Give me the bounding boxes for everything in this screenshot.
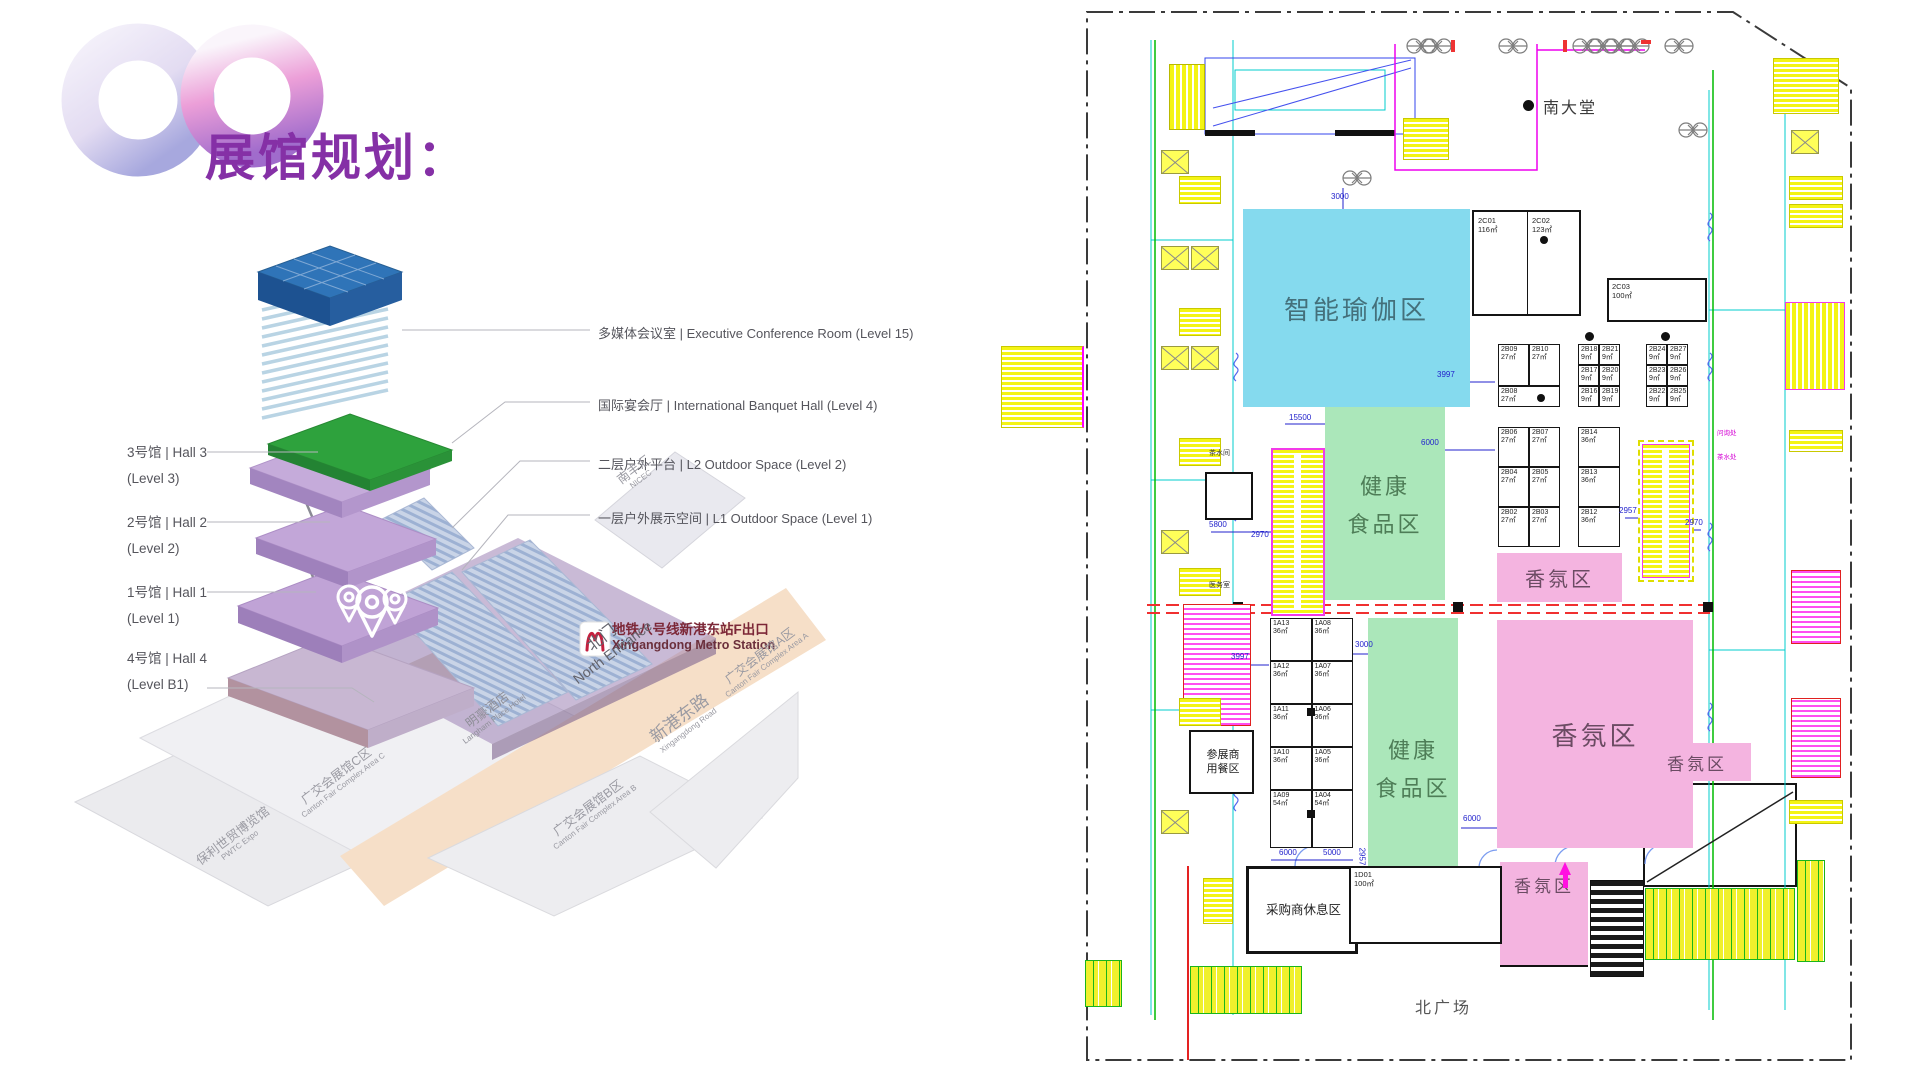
dim: 6000 (1421, 438, 1439, 447)
cad-lift (1191, 346, 1219, 370)
booth: 2B0327㎡ (1529, 507, 1560, 547)
label-hall4: 4号馆 | Hall 4(Level B1) (127, 646, 207, 698)
label-banquet: 国际宴会厅 | International Banquet Hall (Leve… (598, 395, 877, 414)
booth: 2B1027㎡ (1529, 344, 1560, 386)
booth: 2B279㎡ (1667, 344, 1688, 365)
booth: 2B239㎡ (1646, 365, 1667, 386)
booth: 1A0536㎡ (1312, 747, 1354, 790)
entrance-arrow-stem (1563, 874, 1568, 888)
dim: 2970 (1685, 518, 1703, 527)
escalator-left (1271, 448, 1325, 616)
cad-lift (1161, 246, 1189, 270)
dim: 5000 (1323, 848, 1341, 857)
cad-stair (1789, 176, 1843, 200)
booth: 2B0827㎡ (1498, 386, 1560, 407)
room-2c01-2c02: 2C01116㎡ 2C02123㎡ (1472, 210, 1581, 316)
zone-scent-bottom-right: 香氛区 (1643, 743, 1751, 781)
dim: 2957 (1619, 506, 1637, 515)
floor-plan: 智能瑜伽区 健康 食品区 香氛区 健康 食品区 香氛区 香氛区 香氛区 2C01… (1085, 10, 1855, 1062)
cad-lift (1161, 810, 1189, 834)
dim: 5800 (1209, 520, 1227, 529)
booth: 1A0454㎡ (1312, 790, 1354, 848)
cad-lift (1191, 246, 1219, 270)
zone-scent-large: 香氛区 (1497, 620, 1693, 848)
south-lobby-dot (1523, 100, 1534, 111)
cad-lift (1161, 530, 1189, 554)
booth: 2B229㎡ (1646, 386, 1667, 407)
north-plaza-label: 北广场 (1415, 994, 1472, 1018)
booth: 1A1336㎡ (1270, 618, 1312, 661)
exhibitor-dining-area: 参展商用餐区 (1189, 730, 1254, 794)
cad-stair (1179, 176, 1221, 204)
zone-scent-bottom-center: 香氛区 (1500, 862, 1588, 967)
booth-cluster-2b08-10: 2B0927㎡ 2B1027㎡ 2B0827㎡ (1498, 344, 1560, 407)
cad-comb (1190, 966, 1302, 1014)
room-2c03: 2C03100㎡ (1607, 278, 1707, 322)
column-dot (1585, 332, 1594, 341)
dim: 6000 (1279, 848, 1297, 857)
booth: 2B189㎡ (1578, 344, 1599, 365)
booth: 2B1236㎡ (1578, 507, 1620, 547)
column-dot (1307, 708, 1315, 716)
column-dot (1307, 810, 1315, 818)
zone-smart-yoga-label: 智能瑜伽区 (1284, 290, 1429, 327)
booth-cluster-2b22-27: 2B249㎡ 2B279㎡ 2B239㎡ 2B269㎡ 2B229㎡ 2B259… (1646, 344, 1688, 407)
room-1d01: 1D01100㎡ (1349, 866, 1502, 944)
cad-stair (1203, 878, 1233, 924)
booth: 1A0736㎡ (1312, 661, 1354, 704)
dim: 3997 (1437, 370, 1455, 379)
label-l1-outdoor: 一层户外展示空间 | L1 Outdoor Space (Level 1) (598, 508, 872, 527)
cad-stair (1179, 308, 1221, 336)
cad-comb (1085, 960, 1122, 1007)
booth: 1A0836㎡ (1312, 618, 1354, 661)
cad-annex (1001, 346, 1084, 428)
cad-stair (1179, 698, 1221, 726)
column-dot (1540, 236, 1548, 244)
cad-dark-stair (1590, 880, 1644, 977)
booth: 2B1336㎡ (1578, 467, 1620, 507)
booth: 2B1436㎡ (1578, 427, 1620, 467)
slide: { "title": "展馆规划：", "diagram": { "right_… (0, 0, 1920, 1080)
booth: 2B179㎡ (1578, 365, 1599, 386)
booth: 2B219㎡ (1599, 344, 1620, 365)
cad-comb (1797, 860, 1825, 962)
booth-column-2b12-14: 2B1436㎡ 2B1336㎡ 2B1236㎡ (1578, 427, 1620, 547)
dim: 2957 (1357, 848, 1366, 866)
info-desk-label: 问询处 (1717, 430, 1737, 438)
booth: 2B249㎡ (1646, 344, 1667, 365)
cad-stair (1785, 302, 1845, 390)
booth: 1A1036㎡ (1270, 747, 1312, 790)
tea-station-label: 茶水处 (1717, 454, 1737, 462)
dim: 3000 (1355, 640, 1373, 649)
booth: 2B269㎡ (1667, 365, 1688, 386)
label-hall3: 3号馆 | Hall 3(Level 3) (127, 440, 207, 492)
cad-tables (1791, 570, 1841, 644)
shaft-room (1205, 472, 1253, 520)
dim: 3997 (1231, 652, 1249, 661)
cad-stair (1773, 58, 1839, 114)
south-lobby-label: 南大堂 (1543, 94, 1597, 118)
cad-lift (1161, 150, 1189, 174)
escalator-right (1638, 440, 1694, 582)
booth: 1A1236㎡ (1270, 661, 1312, 704)
booth: 2B259㎡ (1667, 386, 1688, 407)
label-conference: 多媒体会议室 | Executive Conference Room (Leve… (598, 323, 914, 342)
dim: 15500 (1289, 413, 1311, 422)
booth: 2B0527㎡ (1529, 467, 1560, 507)
cad-tables (1791, 698, 1841, 778)
cad-hatch (1169, 64, 1205, 130)
cad-stair (1789, 430, 1843, 452)
booth: 2B169㎡ (1578, 386, 1599, 407)
booth: 1A0636㎡ (1312, 704, 1354, 747)
cad-stair (1403, 118, 1449, 160)
tea-room-label: 茶水间 (1209, 450, 1230, 458)
cad-stair (1789, 800, 1843, 824)
booth: 2B199㎡ (1599, 386, 1620, 407)
booth: 2B209㎡ (1599, 365, 1620, 386)
column-dot (1537, 394, 1545, 402)
dim: 6000 (1463, 814, 1481, 823)
column-dot (1661, 332, 1670, 341)
zone-smart-yoga: 智能瑜伽区 (1243, 209, 1470, 407)
cad-comb (1645, 888, 1795, 960)
booth: 2B0927㎡ (1498, 344, 1529, 386)
dim: 3000 (1331, 192, 1349, 201)
booth-cluster-2b02-07: 2B0627㎡ 2B0727㎡ 2B0427㎡ 2B0527㎡ 2B0227㎡ … (1498, 427, 1560, 547)
buyer-rest-area: 采购商休息区 (1246, 866, 1358, 954)
cad-stair (1789, 204, 1843, 228)
booth: 2B0227㎡ (1498, 507, 1529, 547)
booth: 2B0427㎡ (1498, 467, 1529, 507)
label-hall1: 1号馆 | Hall 1(Level 1) (127, 580, 207, 632)
booth: 2B0627㎡ (1498, 427, 1529, 467)
label-hall2: 2号馆 | Hall 2(Level 2) (127, 510, 207, 562)
cad-lift (1791, 130, 1819, 154)
booth: 1A0954㎡ (1270, 790, 1312, 848)
clinic-label: 医务室 (1209, 582, 1230, 590)
zone-health-food-1: 健康 食品区 (1325, 407, 1445, 600)
cad-red-line (1187, 866, 1189, 1060)
zone-scent-small: 香氛区 (1497, 553, 1622, 602)
cad-lift (1161, 346, 1189, 370)
booth-cluster-2b16-21: 2B189㎡ 2B219㎡ 2B179㎡ 2B209㎡ 2B169㎡ 2B199… (1578, 344, 1620, 407)
booth: 1A1136㎡ (1270, 704, 1312, 747)
booth: 2B0727㎡ (1529, 427, 1560, 467)
dim: 2970 (1251, 530, 1269, 539)
